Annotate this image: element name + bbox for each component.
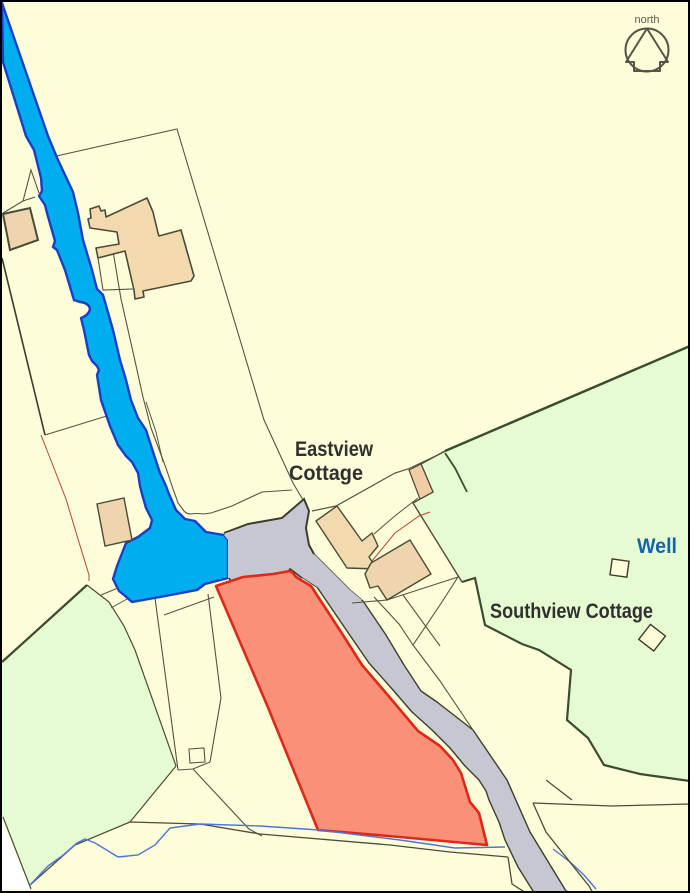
svg-text:north: north: [634, 14, 659, 26]
svg-text:Well: Well: [637, 535, 677, 558]
svg-text:Eastview: Eastview: [295, 438, 374, 461]
svg-text:Cottage: Cottage: [289, 462, 363, 485]
svg-text:Southview Cottage: Southview Cottage: [490, 600, 653, 623]
